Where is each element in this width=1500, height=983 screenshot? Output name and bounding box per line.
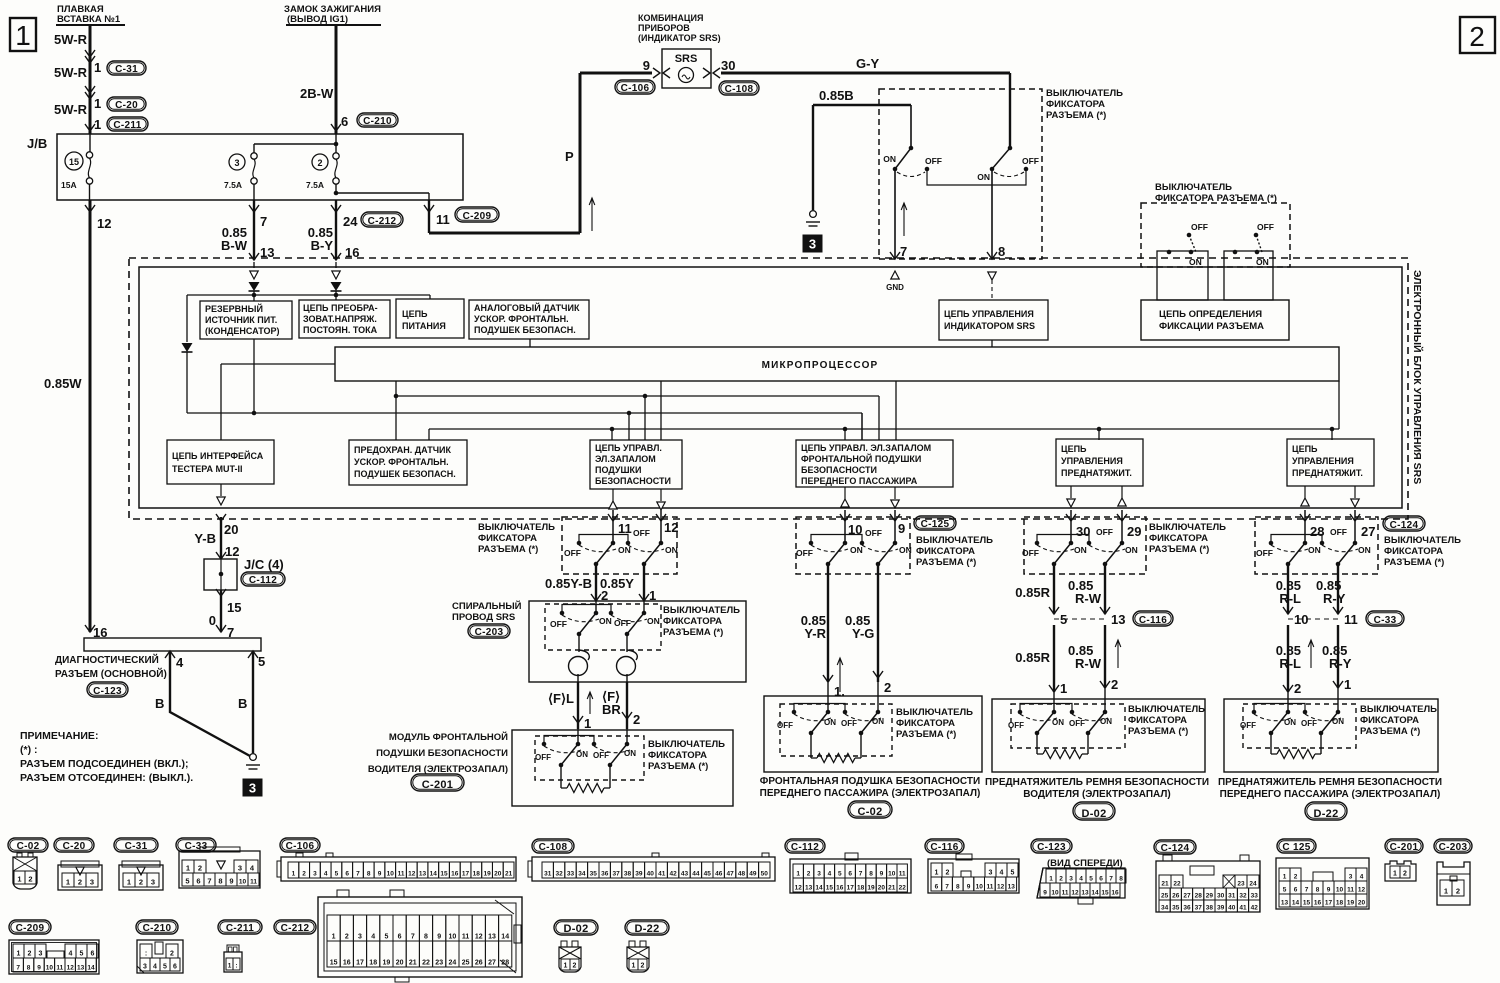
svg-text:GND: GND — [886, 283, 904, 292]
svg-text:ЭЛ.ЗАПАЛОМ: ЭЛ.ЗАПАЛОМ — [595, 454, 656, 464]
svg-text:5: 5 — [1089, 876, 1093, 883]
svg-text:ON: ON — [1332, 717, 1344, 726]
svg-text:4: 4 — [828, 871, 832, 878]
svg-text:РАЗЪЕМ ОТСОЕДИНЕН: (ВЫКЛ.).: РАЗЪЕМ ОТСОЕДИНЕН: (ВЫКЛ.). — [20, 772, 193, 784]
svg-text:ПРИБОРОВ: ПРИБОРОВ — [638, 23, 690, 33]
svg-text:OFF: OFF — [535, 753, 551, 762]
svg-text:R-Y: R-Y — [1323, 591, 1346, 606]
svg-text:26: 26 — [1172, 893, 1180, 900]
svg-text:ON: ON — [872, 717, 884, 726]
svg-text:6: 6 — [173, 964, 177, 971]
svg-text:РЕЗЕРВНЫЙ: РЕЗЕРВНЫЙ — [205, 303, 263, 314]
svg-text:ON: ON — [576, 750, 588, 759]
svg-text:ФИКСАТОРА: ФИКСАТОРА — [663, 616, 722, 627]
svg-text:ЦЕПЬ: ЦЕПЬ — [402, 309, 428, 319]
svg-text:19: 19 — [1347, 900, 1355, 907]
svg-text:C-209: C-209 — [463, 211, 492, 222]
svg-text:Y-G: Y-G — [852, 626, 874, 641]
svg-text:27: 27 — [1361, 524, 1375, 539]
svg-text:BR: BR — [602, 702, 621, 717]
svg-text:УПРАВЛЕНИЯ: УПРАВЛЕНИЯ — [1061, 456, 1123, 466]
svg-text:ВЫКЛЮЧАТЕЛЬ: ВЫКЛЮЧАТЕЛЬ — [916, 535, 993, 546]
svg-text:15: 15 — [1303, 900, 1311, 907]
svg-text:ON: ON — [850, 545, 863, 555]
svg-text:20: 20 — [224, 522, 238, 537]
svg-text:30: 30 — [721, 58, 735, 73]
svg-text:ЭЛЕКТРОННЫЙ БЛОК УПРАВЛЕНИЯ SR: ЭЛЕКТРОННЫЙ БЛОК УПРАВЛЕНИЯ SRS — [1411, 270, 1424, 484]
svg-text:12: 12 — [225, 544, 239, 559]
svg-text:OFF: OFF — [1022, 156, 1039, 166]
svg-text:2: 2 — [1059, 876, 1063, 883]
svg-text:12: 12 — [97, 216, 111, 231]
svg-text:G-Y: G-Y — [856, 56, 879, 71]
svg-text:OFF: OFF — [614, 618, 631, 628]
svg-text:ИНДИКАТОРОМ SRS: ИНДИКАТОРОМ SRS — [944, 321, 1035, 331]
svg-text:ПЕРЕДНЕГО ПАССАЖИРА (ЭЛЕКТРОЗА: ПЕРЕДНЕГО ПАССАЖИРА (ЭЛЕКТРОЗАПАЛ) — [760, 788, 981, 799]
svg-text:OFF: OFF — [1240, 721, 1256, 730]
svg-text:29: 29 — [1206, 893, 1214, 900]
svg-text:0.85Y-B: 0.85Y-B — [545, 576, 592, 591]
svg-text:12: 12 — [997, 884, 1005, 891]
svg-text:5W-R: 5W-R — [54, 102, 88, 117]
svg-text:9: 9 — [229, 877, 233, 886]
svg-text:7: 7 — [356, 871, 360, 878]
svg-text:24: 24 — [343, 214, 358, 229]
svg-text:9: 9 — [378, 871, 382, 878]
svg-text:9: 9 — [437, 934, 441, 941]
svg-text:2B-W: 2B-W — [300, 86, 334, 101]
svg-text:9: 9 — [1327, 887, 1331, 894]
svg-text:50: 50 — [761, 871, 769, 878]
svg-text:2: 2 — [1111, 677, 1118, 692]
svg-text:12: 12 — [1358, 887, 1366, 894]
svg-text:15: 15 — [1101, 890, 1109, 897]
svg-text:ЦЕПЬ УПРАВЛЕНИЯ: ЦЕПЬ УПРАВЛЕНИЯ — [944, 309, 1034, 319]
svg-text:ВОДИТЕЛЯ (ЭЛЕКТРОЗАПАЛ): ВОДИТЕЛЯ (ЭЛЕКТРОЗАПАЛ) — [1023, 789, 1170, 800]
svg-text:OFF: OFF — [550, 619, 567, 629]
svg-text::: : — [235, 963, 237, 970]
svg-text:ЦЕПЬ УПРАВЛ.: ЦЕПЬ УПРАВЛ. — [595, 443, 662, 453]
svg-text:РАЗЪЕМА (*): РАЗЪЕМА (*) — [896, 729, 956, 740]
svg-text:ФИКСАТОРА: ФИКСАТОРА — [1384, 546, 1443, 557]
svg-text:ДИАГНОСТИЧЕСКИЙ: ДИАГНОСТИЧЕСКИЙ — [55, 653, 159, 666]
svg-text:9: 9 — [37, 965, 41, 972]
svg-text:24: 24 — [449, 960, 457, 967]
svg-text:16: 16 — [343, 960, 351, 967]
svg-text:12: 12 — [67, 965, 75, 972]
svg-text:ФИКСАТОРА: ФИКСАТОРА — [916, 546, 975, 557]
svg-text:OFF: OFF — [1191, 222, 1208, 232]
svg-text:30: 30 — [1076, 524, 1090, 539]
svg-text:23: 23 — [435, 960, 443, 967]
svg-text:3: 3 — [143, 964, 147, 971]
svg-text:1: 1 — [127, 878, 131, 887]
svg-text:ON: ON — [1308, 545, 1321, 555]
svg-text:ON: ON — [1358, 545, 1371, 555]
svg-text:МОДУЛЬ ФРОНТАЛЬНОЙ: МОДУЛЬ ФРОНТАЛЬНОЙ — [389, 731, 508, 743]
svg-text:19: 19 — [383, 960, 391, 967]
svg-text:C-112: C-112 — [791, 842, 819, 853]
svg-text:6: 6 — [398, 934, 402, 941]
svg-text:28: 28 — [1195, 893, 1203, 900]
svg-text:40: 40 — [1228, 905, 1236, 912]
svg-text:R-L: R-L — [1279, 656, 1301, 671]
svg-text:C-108: C-108 — [725, 84, 754, 95]
svg-text:ЦЕПЬ ПРЕОБРА-: ЦЕПЬ ПРЕОБРА- — [303, 303, 378, 313]
svg-text:C-31: C-31 — [125, 841, 148, 852]
svg-text:3: 3 — [238, 864, 242, 873]
svg-text:C-201: C-201 — [1390, 842, 1419, 853]
svg-text:10: 10 — [888, 871, 896, 878]
svg-text:15: 15 — [330, 960, 338, 967]
svg-text:39: 39 — [1217, 905, 1225, 912]
svg-text:OFF: OFF — [796, 548, 813, 558]
svg-text:13: 13 — [1081, 890, 1089, 897]
svg-text:11: 11 — [436, 212, 450, 227]
svg-text:ON: ON — [899, 545, 912, 555]
svg-text:15: 15 — [227, 600, 241, 615]
svg-text:7: 7 — [859, 871, 863, 878]
svg-text:46: 46 — [715, 871, 723, 878]
svg-text:C-20: C-20 — [115, 100, 138, 111]
svg-text:31: 31 — [544, 871, 552, 878]
svg-text:6: 6 — [1099, 876, 1103, 883]
svg-text:1.: 1. — [834, 684, 845, 699]
svg-text:ПРЕДНАТЯЖИТЕЛЬ РЕМНЯ БЕЗОПАСНО: ПРЕДНАТЯЖИТЕЛЬ РЕМНЯ БЕЗОПАСНОСТИ — [1218, 777, 1442, 788]
svg-text:4: 4 — [176, 655, 184, 670]
svg-text:32: 32 — [555, 871, 563, 878]
svg-text:2: 2 — [317, 158, 322, 168]
svg-text:2: 2 — [1294, 874, 1298, 881]
svg-text:РАЗЪЕМА (*): РАЗЪЕМА (*) — [1360, 726, 1420, 737]
svg-text:ФИКСАТОРА: ФИКСАТОРА — [1046, 99, 1105, 110]
svg-text:J/B: J/B — [27, 136, 47, 151]
svg-text:ВЫКЛЮЧАТЕЛЬ: ВЫКЛЮЧАТЕЛЬ — [1128, 704, 1205, 715]
svg-text:4: 4 — [1000, 870, 1004, 877]
svg-text:14: 14 — [87, 965, 95, 972]
svg-text:11: 11 — [899, 871, 906, 878]
svg-text:11: 11 — [398, 871, 405, 878]
svg-text:43: 43 — [681, 871, 689, 878]
svg-text:9: 9 — [1043, 890, 1047, 897]
svg-text:ФРОНТАЛЬНАЯ ПОДУШКА БЕЗОПАСНОС: ФРОНТАЛЬНАЯ ПОДУШКА БЕЗОПАСНОСТИ — [760, 776, 980, 787]
svg-text:33: 33 — [1251, 893, 1259, 900]
svg-text:14: 14 — [501, 934, 509, 941]
svg-text:9: 9 — [967, 884, 971, 891]
svg-text:J/C (4): J/C (4) — [244, 557, 284, 572]
svg-text:ON: ON — [1125, 545, 1138, 555]
svg-text:12: 12 — [408, 871, 416, 878]
svg-text:ФИКСАТОРА: ФИКСАТОРА — [896, 718, 955, 729]
svg-text:ТЕСТЕРА MUT-II: ТЕСТЕРА MUT-II — [172, 464, 242, 474]
svg-text:(КОНДЕНСАТОР): (КОНДЕНСАТОР) — [205, 326, 280, 336]
svg-text:OFF: OFF — [633, 528, 650, 538]
svg-text:14: 14 — [1292, 900, 1300, 907]
svg-text:0.85R: 0.85R — [1015, 650, 1050, 665]
svg-text:3: 3 — [151, 878, 155, 887]
svg-text:ФИКСАТОРА: ФИКСАТОРА — [1128, 715, 1187, 726]
svg-text:3: 3 — [313, 871, 317, 878]
svg-text:АНАЛОГОВЫЙ ДАТЧИК: АНАЛОГОВЫЙ ДАТЧИК — [474, 302, 580, 313]
svg-text:20: 20 — [494, 871, 502, 878]
svg-text:R-W: R-W — [1075, 656, 1102, 671]
svg-text:C-203: C-203 — [475, 627, 504, 638]
svg-text:ПОДУШКИ БЕЗОПАСНОСТИ: ПОДУШКИ БЕЗОПАСНОСТИ — [376, 748, 508, 759]
svg-text:18: 18 — [473, 871, 481, 878]
svg-text:16: 16 — [1111, 890, 1119, 897]
svg-text:7: 7 — [260, 214, 267, 229]
svg-text:48: 48 — [738, 871, 746, 878]
svg-text:10: 10 — [46, 965, 54, 972]
svg-text:11: 11 — [1062, 890, 1069, 897]
svg-text:C-112: C-112 — [249, 575, 277, 586]
svg-text:41: 41 — [658, 871, 666, 878]
svg-text:Y-R: Y-R — [804, 626, 826, 641]
svg-text:ПРОВОД SRS: ПРОВОД SRS — [452, 612, 515, 623]
svg-text:1: 1 — [1049, 876, 1053, 883]
svg-text:1: 1 — [564, 963, 568, 970]
svg-text:B: B — [155, 696, 164, 711]
svg-text:ПРЕДОХРАН. ДАТЧИК: ПРЕДОХРАН. ДАТЧИК — [354, 445, 452, 455]
svg-text:47: 47 — [726, 871, 734, 878]
svg-text:8: 8 — [1119, 876, 1123, 883]
svg-text:C-20: C-20 — [63, 841, 86, 852]
svg-text:6: 6 — [345, 871, 349, 878]
svg-text:7: 7 — [1305, 887, 1309, 894]
svg-text:OFF: OFF — [564, 548, 581, 558]
svg-text:8: 8 — [367, 871, 371, 878]
svg-text:2: 2 — [884, 680, 891, 695]
svg-text:(ВЫВОД IG1): (ВЫВОД IG1) — [287, 14, 348, 25]
svg-text:ON: ON — [618, 545, 631, 555]
svg-text:38: 38 — [1206, 905, 1214, 912]
svg-text:1: 1 — [292, 871, 296, 878]
svg-text:9: 9 — [898, 521, 905, 536]
svg-text:ПРЕДНАТЯЖИТ.: ПРЕДНАТЯЖИТ. — [1292, 468, 1363, 478]
svg-text:OFF: OFF — [1022, 548, 1039, 558]
svg-text:21: 21 — [888, 885, 896, 892]
svg-text:4: 4 — [69, 951, 73, 958]
svg-text:1: 1 — [94, 117, 101, 132]
svg-text:4: 4 — [153, 964, 157, 971]
svg-text:42: 42 — [1251, 905, 1259, 912]
svg-text:OFF: OFF — [1257, 222, 1274, 232]
svg-text:ON: ON — [1284, 718, 1296, 727]
svg-text:B-W: B-W — [221, 238, 248, 253]
svg-text:8: 8 — [1316, 887, 1320, 894]
svg-text:12: 12 — [475, 934, 483, 941]
svg-text:5: 5 — [838, 871, 842, 878]
svg-text:31: 31 — [1228, 893, 1236, 900]
svg-text:11: 11 — [1344, 612, 1358, 627]
svg-text:C-212: C-212 — [281, 923, 310, 934]
svg-text:D-22: D-22 — [1313, 808, 1338, 820]
svg-text:37: 37 — [612, 871, 620, 878]
svg-text:ВЫКЛЮЧАТЕЛЬ: ВЫКЛЮЧАТЕЛЬ — [478, 522, 555, 533]
svg-text:24: 24 — [1249, 881, 1257, 888]
svg-text:25: 25 — [1161, 893, 1169, 900]
svg-text:16: 16 — [1314, 900, 1322, 907]
svg-text:21: 21 — [409, 960, 417, 967]
svg-text:15: 15 — [69, 157, 79, 167]
svg-text:ПРЕДНАТЯЖИТ.: ПРЕДНАТЯЖИТ. — [1061, 468, 1132, 478]
svg-text:30: 30 — [1217, 893, 1225, 900]
svg-text:11: 11 — [1347, 887, 1354, 894]
svg-text:РАЗЪЕМА (*): РАЗЪЕМА (*) — [1384, 557, 1444, 568]
svg-text:8: 8 — [956, 884, 960, 891]
svg-text:2: 2 — [641, 963, 645, 970]
svg-text:OFF: OFF — [865, 528, 882, 538]
svg-text:ЦЕПЬ: ЦЕПЬ — [1292, 444, 1318, 454]
svg-text:B-Y: B-Y — [311, 238, 334, 253]
svg-text:2: 2 — [198, 864, 202, 873]
svg-text:ВЫКЛЮЧАТЕЛЬ: ВЫКЛЮЧАТЕЛЬ — [648, 739, 725, 750]
svg-text:C-31: C-31 — [115, 64, 138, 75]
svg-text:37: 37 — [1195, 905, 1203, 912]
svg-text:1: 1 — [935, 870, 939, 877]
svg-text:ВЫКЛЮЧАТЕЛЬ: ВЫКЛЮЧАТЕЛЬ — [1360, 704, 1437, 715]
svg-text:C-124: C-124 — [1161, 843, 1190, 854]
svg-text:7: 7 — [900, 244, 907, 259]
svg-text:19: 19 — [483, 871, 491, 878]
svg-text:2: 2 — [1456, 887, 1460, 896]
svg-text:1: 1 — [186, 864, 190, 873]
svg-text:4: 4 — [1360, 874, 1364, 881]
svg-text::: : — [145, 951, 147, 958]
svg-text:40: 40 — [647, 871, 655, 878]
svg-text:14: 14 — [430, 871, 438, 878]
svg-text:3: 3 — [1069, 876, 1073, 883]
svg-text:29: 29 — [1127, 524, 1141, 539]
svg-text:2: 2 — [78, 878, 82, 887]
svg-text:РАЗЪЕМА (*): РАЗЪЕМА (*) — [648, 761, 708, 772]
svg-text:OFF: OFF — [1256, 548, 1273, 558]
svg-text:5: 5 — [80, 951, 84, 958]
svg-text:17: 17 — [356, 960, 364, 967]
svg-text:13: 13 — [1008, 884, 1016, 891]
svg-text:УСКОР. ФРОНТАЛЬН.: УСКОР. ФРОНТАЛЬН. — [354, 457, 449, 467]
svg-text:11: 11 — [986, 884, 993, 891]
svg-text:0.85R: 0.85R — [1015, 585, 1050, 600]
svg-text:11: 11 — [56, 965, 63, 972]
svg-text:6: 6 — [341, 114, 348, 129]
svg-text:3: 3 — [39, 951, 43, 958]
svg-text:ФИКСАТОРА: ФИКСАТОРА — [478, 533, 537, 544]
svg-text:9: 9 — [880, 871, 884, 878]
svg-text:5: 5 — [163, 964, 167, 971]
svg-text:7.5A: 7.5A — [306, 180, 324, 190]
svg-text:7: 7 — [945, 884, 949, 891]
svg-text:5W-R: 5W-R — [54, 65, 88, 80]
svg-text:22: 22 — [899, 885, 907, 892]
svg-text:20: 20 — [1358, 900, 1366, 907]
svg-text:13: 13 — [77, 965, 85, 972]
svg-text:C-106: C-106 — [621, 83, 650, 94]
svg-text:СПИРАЛЬНЫЙ: СПИРАЛЬНЫЙ — [452, 600, 522, 612]
svg-text:(*) :: (*) : — [20, 744, 38, 756]
svg-text:C-210: C-210 — [363, 116, 392, 127]
svg-text:11: 11 — [618, 521, 632, 536]
svg-text:OFF: OFF — [1301, 719, 1317, 728]
svg-text:16: 16 — [836, 885, 844, 892]
svg-text:РАЗЪЕМА (*): РАЗЪЕМА (*) — [1149, 544, 1209, 555]
svg-text:ИСТОЧНИК ПИТ.: ИСТОЧНИК ПИТ. — [205, 315, 277, 325]
svg-text:ЦЕПЬ УПРАВЛ. ЭЛ.ЗАПАЛОМ: ЦЕПЬ УПРАВЛ. ЭЛ.ЗАПАЛОМ — [801, 443, 931, 453]
svg-text:C-209: C-209 — [16, 923, 45, 934]
svg-text:C-203: C-203 — [1439, 842, 1468, 853]
svg-text:7: 7 — [16, 965, 20, 972]
svg-text:4: 4 — [371, 934, 375, 941]
svg-text:13: 13 — [488, 934, 496, 941]
svg-text:C-106: C-106 — [286, 841, 315, 852]
svg-text:34: 34 — [1161, 905, 1169, 912]
svg-text:ПИТАНИЯ: ПИТАНИЯ — [402, 321, 446, 331]
svg-text:ФИКСАТОРА: ФИКСАТОРА — [1149, 533, 1208, 544]
svg-text:6: 6 — [848, 871, 852, 878]
svg-text:R-W: R-W — [1075, 591, 1102, 606]
svg-text:ON: ON — [1052, 718, 1064, 727]
svg-text:12: 12 — [1071, 890, 1079, 897]
svg-text:ON: ON — [665, 545, 678, 555]
svg-text:33: 33 — [567, 871, 575, 878]
svg-text:2: 2 — [1403, 871, 1407, 878]
svg-text:ВЫКЛЮЧАТЕЛЬ: ВЫКЛЮЧАТЕЛЬ — [1155, 182, 1232, 193]
svg-text:ПОДУШЕК БЕЗОПАСН.: ПОДУШЕК БЕЗОПАСН. — [474, 325, 576, 335]
svg-text:17: 17 — [462, 871, 470, 878]
svg-text:SRS: SRS — [675, 53, 698, 65]
svg-text:2: 2 — [170, 951, 174, 958]
svg-text:35: 35 — [590, 871, 598, 878]
svg-text:13: 13 — [1111, 612, 1125, 627]
svg-text:2: 2 — [573, 963, 577, 970]
svg-text:42: 42 — [669, 871, 677, 878]
svg-text:8: 8 — [424, 934, 428, 941]
svg-text:УПРАВЛЕНИЯ: УПРАВЛЕНИЯ — [1292, 456, 1354, 466]
svg-text:OFF: OFF — [593, 751, 609, 760]
svg-text:РАЗЪЕМА (*): РАЗЪЕМА (*) — [1046, 110, 1106, 121]
svg-text:C-116: C-116 — [930, 842, 958, 853]
svg-text:17: 17 — [847, 885, 855, 892]
svg-text:ПОСТОЯН. ТОКА: ПОСТОЯН. ТОКА — [303, 325, 378, 335]
svg-text:РАЗЪЕМ (ОСНОВНОЙ): РАЗЪЕМ (ОСНОВНОЙ) — [55, 667, 167, 680]
svg-text:ON: ON — [824, 718, 836, 727]
svg-text:2: 2 — [345, 934, 349, 941]
svg-text:C-108: C-108 — [539, 842, 568, 853]
svg-text:КОМБИНАЦИЯ: КОМБИНАЦИЯ — [638, 13, 703, 23]
svg-text:ФРОНТАЛЬНОЙ ПОДУШКИ: ФРОНТАЛЬНОЙ ПОДУШКИ — [801, 453, 921, 464]
svg-text:C-02: C-02 — [857, 806, 882, 818]
svg-text:OFF: OFF — [841, 719, 857, 728]
svg-text:15A: 15A — [61, 180, 77, 190]
svg-text:8: 8 — [27, 965, 31, 972]
svg-text:28: 28 — [501, 960, 509, 967]
svg-text:C-212: C-212 — [368, 216, 397, 227]
svg-text:OFF: OFF — [1330, 527, 1347, 537]
svg-text:ВЫКЛЮЧАТЕЛЬ: ВЫКЛЮЧАТЕЛЬ — [1046, 88, 1123, 99]
svg-text:45: 45 — [704, 871, 712, 878]
svg-text:49: 49 — [749, 871, 757, 878]
svg-text:7: 7 — [411, 934, 415, 941]
svg-text:C-02: C-02 — [17, 841, 40, 852]
svg-text:25: 25 — [462, 960, 470, 967]
svg-text:D-02: D-02 — [563, 923, 588, 935]
svg-text:5: 5 — [335, 871, 339, 878]
svg-text:3: 3 — [90, 878, 94, 887]
svg-text:4: 4 — [1079, 876, 1083, 883]
svg-text:14: 14 — [815, 885, 823, 892]
svg-text:21: 21 — [505, 871, 513, 878]
svg-text:R-L: R-L — [1279, 591, 1301, 606]
